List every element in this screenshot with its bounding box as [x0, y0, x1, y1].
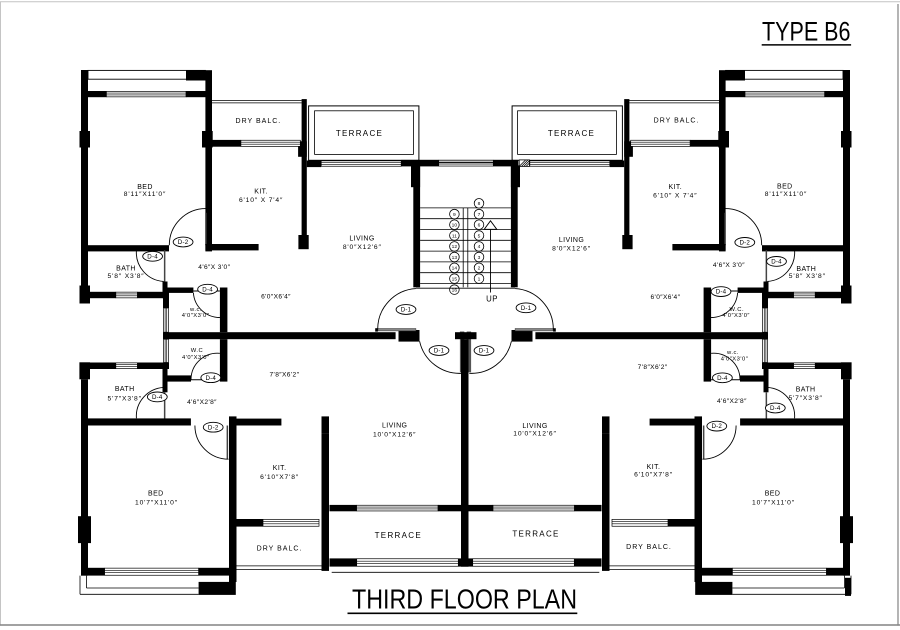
svg-text:BATH: BATH — [796, 387, 816, 394]
svg-text:6'10″ X 7'4″: 6'10″ X 7'4″ — [239, 197, 283, 204]
svg-text:10'7″X11'0″: 10'7″X11'0″ — [135, 500, 178, 507]
svg-text:D-1: D-1 — [434, 348, 445, 355]
svg-text:10: 10 — [452, 223, 458, 229]
svg-text:D-4: D-4 — [202, 286, 213, 293]
svg-text:8'0″X12'6″: 8'0″X12'6″ — [343, 244, 382, 251]
svg-text:8'11″X11'0″: 8'11″X11'0″ — [124, 191, 166, 198]
svg-text:D-4: D-4 — [771, 259, 782, 266]
svg-text:13: 13 — [452, 255, 458, 261]
svg-text:TYPE B6: TYPE B6 — [762, 17, 851, 47]
svg-text:BED: BED — [148, 490, 164, 497]
svg-text:4'6″X 3'0″: 4'6″X 3'0″ — [198, 264, 230, 271]
svg-text:DRY BALC.: DRY BALC. — [236, 118, 282, 125]
svg-text:5'7″X3'8″: 5'7″X3'8″ — [788, 395, 822, 402]
svg-text:4'6″X 3'0″: 4'6″X 3'0″ — [713, 262, 745, 269]
svg-text:4'6″X2'8″: 4'6″X2'8″ — [187, 399, 217, 406]
svg-text:4'6″X2'8″: 4'6″X2'8″ — [717, 398, 747, 405]
svg-text:5'7″X3'8″: 5'7″X3'8″ — [108, 395, 142, 402]
svg-text:7'8″X6'2″: 7'8″X6'2″ — [638, 364, 668, 371]
svg-text:TERRACE: TERRACE — [375, 531, 422, 540]
svg-text:7'8″X6'2″: 7'8″X6'2″ — [269, 372, 299, 379]
svg-text:8'0″X12'6″: 8'0″X12'6″ — [552, 245, 591, 252]
svg-text:4'0″X3'0″: 4'0″X3'0″ — [722, 313, 750, 319]
svg-text:D-2: D-2 — [208, 424, 219, 431]
svg-text:4'0″X3'0″: 4'0″X3'0″ — [182, 313, 210, 319]
svg-text:15: 15 — [452, 276, 458, 282]
svg-text:D-1: D-1 — [479, 348, 490, 355]
svg-text:9: 9 — [453, 212, 456, 218]
svg-text:5'8″ X3'8″: 5'8″ X3'8″ — [789, 273, 826, 280]
svg-text:6'10″ X 7'4″: 6'10″ X 7'4″ — [653, 193, 697, 200]
svg-text:TERRACE: TERRACE — [548, 129, 595, 138]
svg-text:6'10″X7'8″: 6'10″X7'8″ — [260, 474, 299, 481]
svg-text:7: 7 — [478, 212, 481, 218]
svg-text:BATH: BATH — [115, 386, 135, 393]
svg-text:11: 11 — [452, 233, 457, 239]
svg-text:5: 5 — [478, 233, 481, 239]
svg-text:LIVING: LIVING — [559, 237, 584, 244]
svg-text:BATH: BATH — [116, 265, 136, 272]
svg-text:10'0″X12'6″: 10'0″X12'6″ — [373, 431, 416, 438]
svg-text:4'0″X3'0″: 4'0″X3'0″ — [182, 355, 210, 361]
svg-text:KIT.: KIT. — [668, 184, 682, 191]
svg-text:TERRACE: TERRACE — [336, 129, 383, 138]
svg-text:W.C.: W.C. — [730, 307, 745, 313]
svg-text:3: 3 — [478, 255, 481, 261]
svg-text:w.c.: w.c. — [726, 350, 739, 356]
svg-text:1: 1 — [478, 276, 481, 282]
svg-text:6'10″X7'8″: 6'10″X7'8″ — [634, 472, 673, 479]
svg-text:w.c.: w.c. — [189, 307, 202, 313]
svg-text:D-2: D-2 — [740, 240, 751, 247]
svg-text:D-1: D-1 — [521, 305, 532, 312]
svg-text:THIRD FLOOR PLAN: THIRD FLOOR PLAN — [352, 584, 577, 615]
svg-text:8'11″X11'0″: 8'11″X11'0″ — [765, 191, 807, 198]
svg-text:D-2: D-2 — [178, 239, 189, 246]
svg-text:D-4: D-4 — [147, 253, 158, 260]
svg-text:LIVING: LIVING — [522, 423, 547, 430]
svg-text:D-4: D-4 — [152, 394, 163, 401]
svg-text:D-4: D-4 — [716, 289, 727, 296]
svg-text:4: 4 — [478, 244, 481, 250]
svg-text:KIT.: KIT. — [254, 189, 268, 196]
svg-text:6: 6 — [478, 223, 481, 229]
svg-text:D-4: D-4 — [717, 375, 728, 382]
svg-text:10'0″X12'6″: 10'0″X12'6″ — [513, 430, 556, 437]
svg-text:LIVING: LIVING — [382, 422, 407, 429]
svg-text:4'0″X3'0″: 4'0″X3'0″ — [721, 357, 749, 363]
svg-text:2: 2 — [478, 266, 481, 272]
svg-text:UP: UP — [486, 295, 498, 304]
svg-text:12: 12 — [452, 244, 458, 250]
svg-text:DRY BALC.: DRY BALC. — [257, 545, 303, 552]
svg-text:D-4: D-4 — [206, 375, 217, 382]
svg-text:D-2: D-2 — [712, 423, 723, 430]
svg-text:DRY BALC.: DRY BALC. — [654, 117, 700, 124]
svg-text:8: 8 — [478, 201, 481, 207]
svg-text:KIT.: KIT. — [647, 464, 661, 471]
svg-text:KIT.: KIT. — [273, 465, 287, 472]
svg-text:DRY BALC.: DRY BALC. — [626, 544, 672, 551]
svg-text:10'7″X11'0″: 10'7″X11'0″ — [752, 499, 795, 506]
svg-text:BATH: BATH — [796, 266, 816, 273]
svg-text:14: 14 — [452, 266, 458, 272]
svg-text:LIVING: LIVING — [349, 236, 374, 243]
svg-text:W.C: W.C — [191, 348, 203, 354]
svg-text:TERRACE: TERRACE — [512, 529, 559, 538]
svg-text:6'0″X6'4″: 6'0″X6'4″ — [650, 294, 680, 301]
svg-text:D-1: D-1 — [401, 307, 412, 314]
svg-text:BED: BED — [765, 490, 781, 497]
svg-text:D-4: D-4 — [770, 405, 781, 412]
svg-text:BED: BED — [137, 184, 153, 191]
svg-text:5'8″ X3'8″: 5'8″ X3'8″ — [108, 273, 145, 280]
svg-text:6'0″X6'4″: 6'0″X6'4″ — [261, 293, 291, 300]
svg-text:BED: BED — [777, 184, 793, 191]
